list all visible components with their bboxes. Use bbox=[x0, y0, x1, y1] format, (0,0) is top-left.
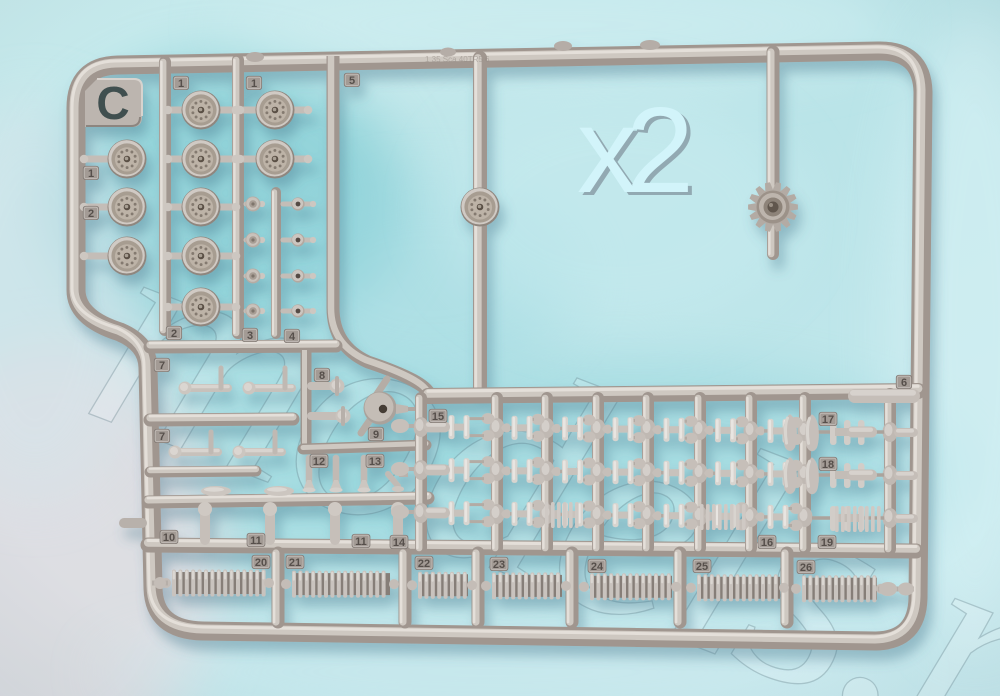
svg-text:7: 7 bbox=[159, 360, 165, 372]
svg-text:7: 7 bbox=[159, 431, 165, 443]
svg-text:4: 4 bbox=[289, 331, 296, 343]
svg-text:1: 1 bbox=[178, 78, 184, 90]
svg-text:9: 9 bbox=[373, 429, 379, 441]
svg-text:21: 21 bbox=[289, 557, 301, 569]
svg-text:25: 25 bbox=[696, 561, 708, 573]
svg-text:5: 5 bbox=[349, 75, 355, 87]
svg-text:18: 18 bbox=[822, 459, 834, 471]
svg-text:24: 24 bbox=[591, 561, 604, 573]
svg-text:10: 10 bbox=[163, 532, 175, 544]
svg-text:2: 2 bbox=[88, 208, 94, 220]
svg-text:6: 6 bbox=[901, 377, 907, 389]
svg-text:17: 17 bbox=[822, 414, 834, 426]
svg-text:14: 14 bbox=[393, 537, 406, 549]
svg-text:1: 1 bbox=[251, 78, 257, 90]
svg-text:23: 23 bbox=[493, 559, 505, 571]
svg-text:22: 22 bbox=[418, 558, 430, 570]
svg-text:3: 3 bbox=[247, 330, 253, 342]
svg-text:11: 11 bbox=[355, 536, 367, 548]
svg-text:13: 13 bbox=[369, 456, 381, 468]
svg-text:8: 8 bbox=[319, 370, 325, 382]
svg-text:15: 15 bbox=[432, 411, 444, 423]
svg-text:20: 20 bbox=[255, 557, 267, 569]
svg-text:11: 11 bbox=[250, 535, 262, 547]
svg-text:16: 16 bbox=[761, 537, 773, 549]
svg-text:12: 12 bbox=[313, 456, 325, 468]
svg-text:19: 19 bbox=[821, 537, 833, 549]
svg-text:1: 1 bbox=[88, 168, 94, 180]
svg-text:1 35 Sca 40TR5 6: 1 35 Sca 40TR5 6 bbox=[425, 55, 490, 64]
svg-text:C: C bbox=[96, 77, 129, 129]
svg-text:x2: x2 bbox=[577, 82, 694, 218]
svg-text:2: 2 bbox=[171, 328, 177, 340]
svg-text:26: 26 bbox=[800, 562, 812, 574]
